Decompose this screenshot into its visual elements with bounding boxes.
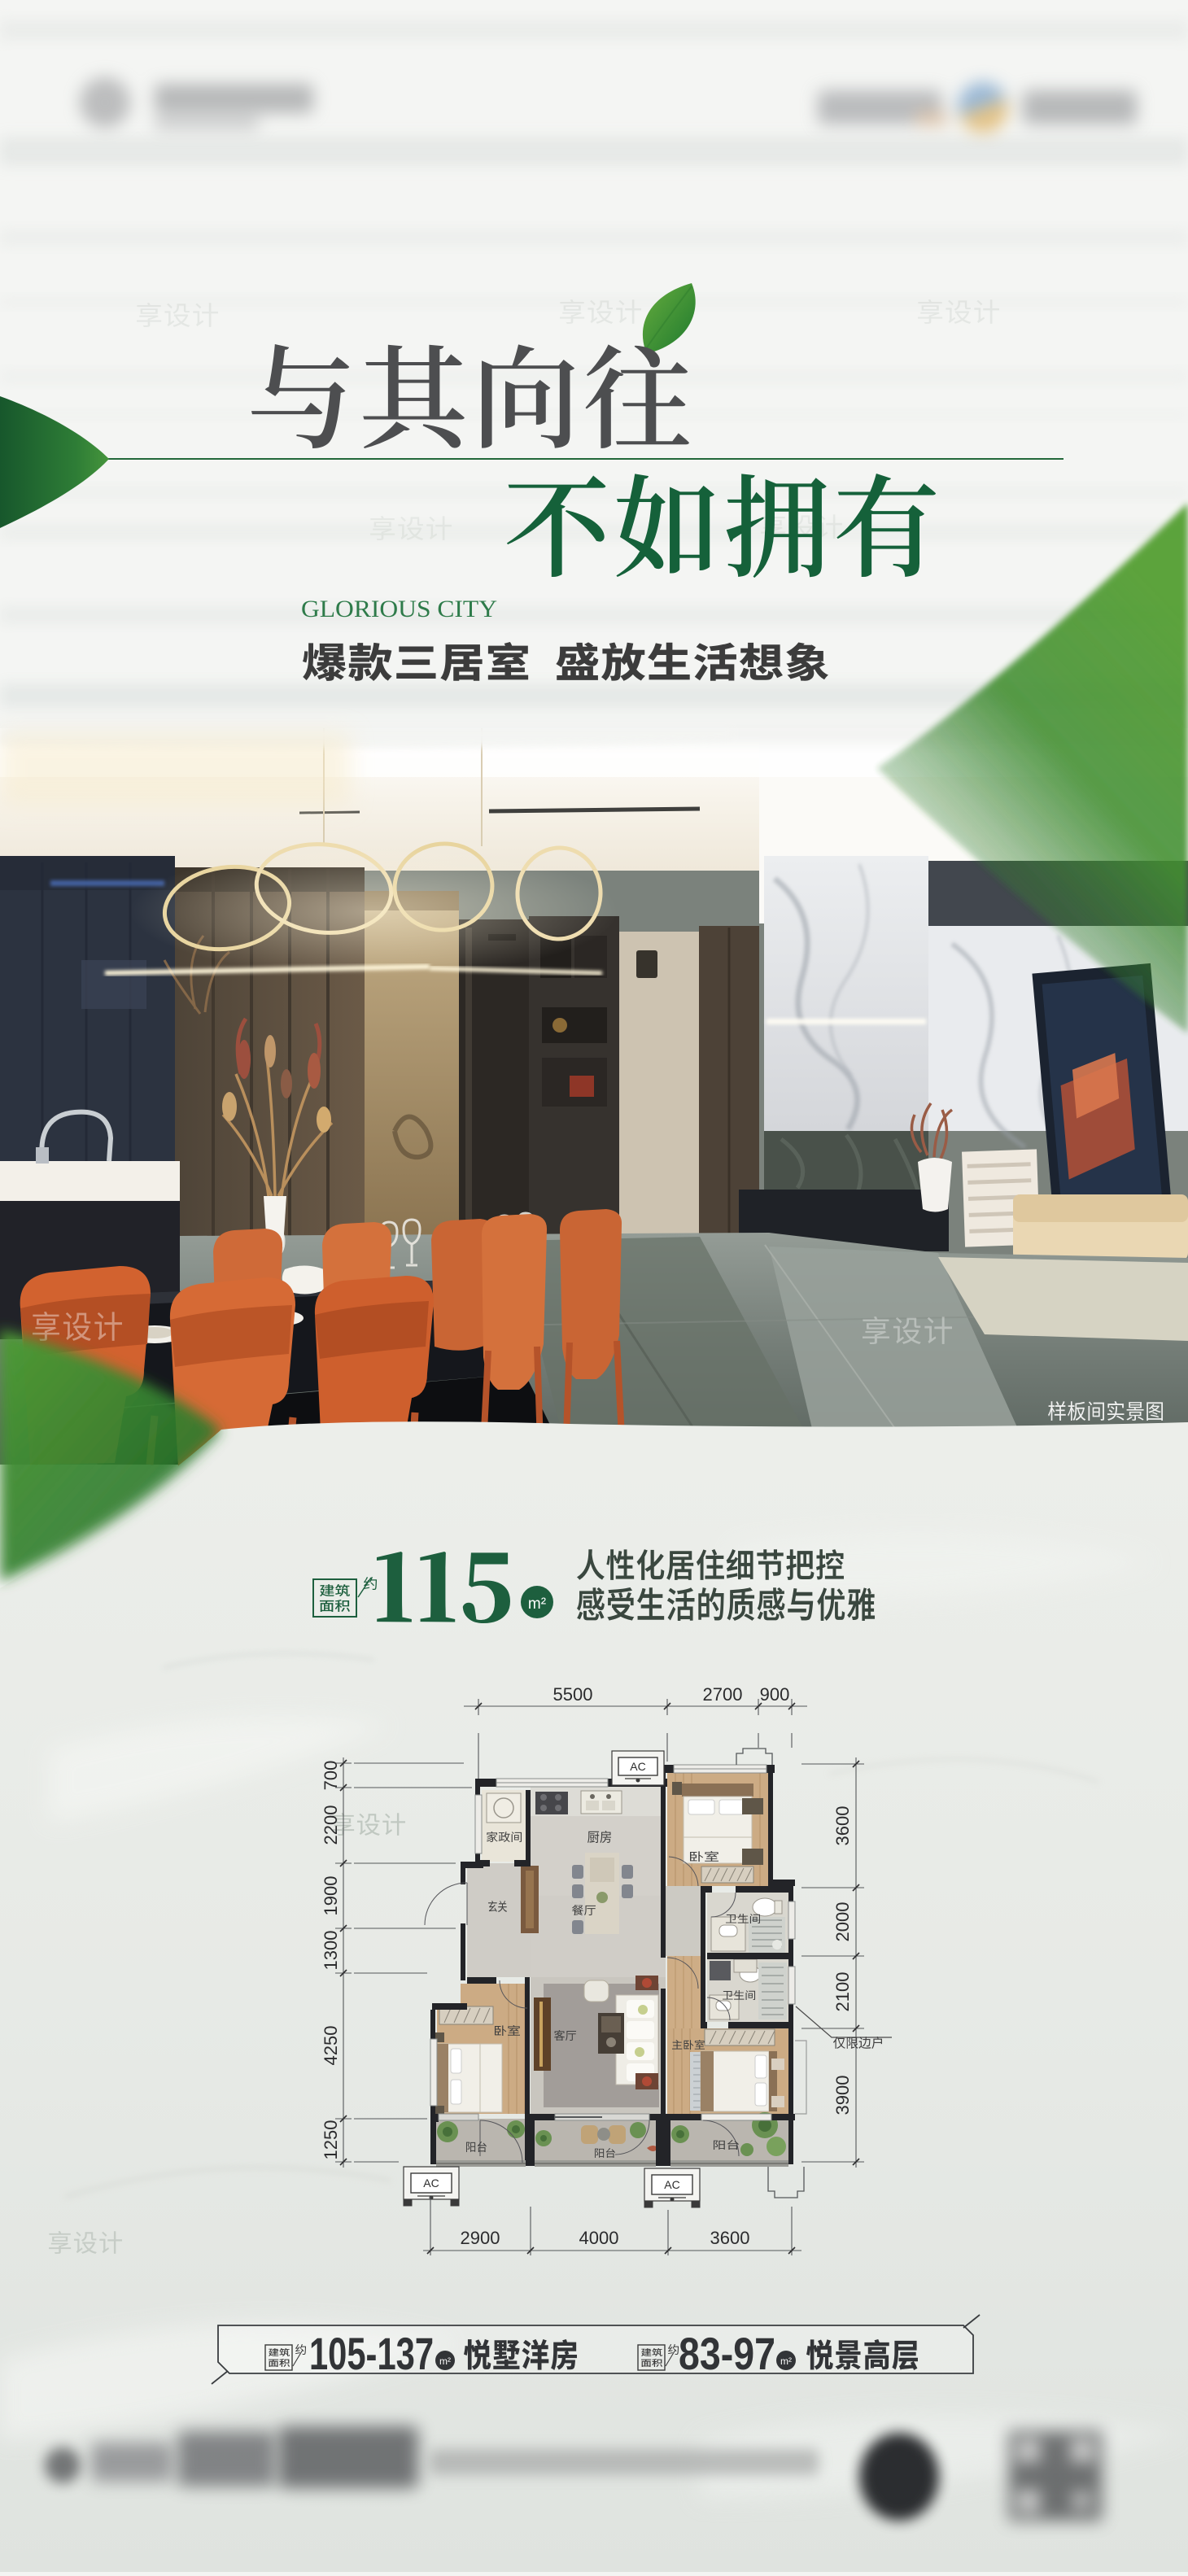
svg-text:3600: 3600: [832, 1806, 853, 1846]
svg-text:5500: 5500: [553, 1684, 593, 1705]
svg-text:105-137: 105-137: [309, 2328, 434, 2379]
svg-text:m²: m²: [780, 2356, 792, 2367]
svg-text:2000: 2000: [832, 1902, 853, 1942]
svg-text:2900: 2900: [461, 2228, 500, 2248]
svg-text:m²: m²: [528, 1596, 546, 1613]
svg-text:1900: 1900: [321, 1876, 341, 1916]
svg-text:m²: m²: [439, 2356, 451, 2367]
svg-text:1250: 1250: [321, 2120, 341, 2160]
svg-text:AC: AC: [664, 2178, 679, 2191]
svg-text:2100: 2100: [832, 1972, 853, 2012]
svg-text:900: 900: [760, 1684, 790, 1705]
svg-text:3600: 3600: [710, 2228, 750, 2248]
svg-text:AC: AC: [630, 1760, 645, 1773]
svg-text:1300: 1300: [321, 1931, 341, 1971]
svg-text:700: 700: [321, 1761, 341, 1791]
svg-text:4250: 4250: [321, 2026, 341, 2066]
svg-text:2200: 2200: [321, 1805, 341, 1845]
svg-text:GLORIOUS CITY: GLORIOUS CITY: [301, 596, 497, 622]
svg-text:83-97: 83-97: [679, 2328, 775, 2379]
svg-text:2700: 2700: [703, 1684, 743, 1705]
svg-text:4000: 4000: [579, 2228, 619, 2248]
svg-text:3900: 3900: [832, 2076, 853, 2115]
svg-text:AC: AC: [423, 2177, 439, 2190]
